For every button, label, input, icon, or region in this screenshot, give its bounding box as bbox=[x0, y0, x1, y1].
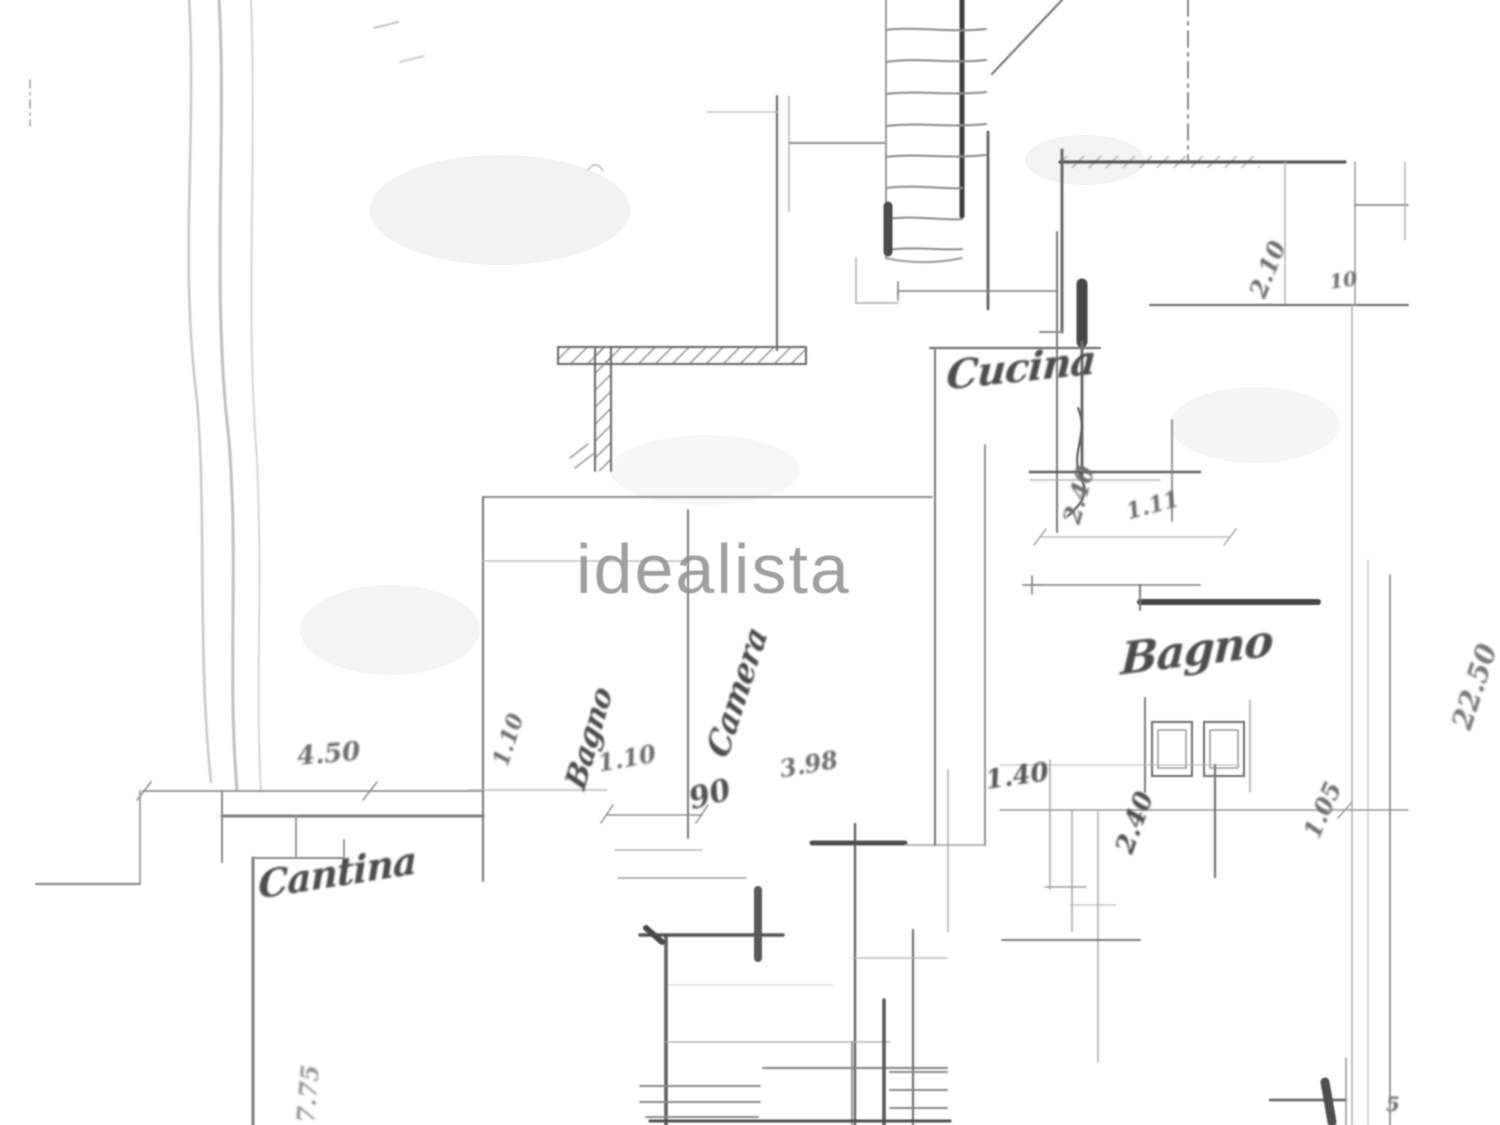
dim-cellar-depth: 7.75 bbox=[294, 1064, 323, 1124]
dim-site-width: 4.50 bbox=[296, 738, 361, 769]
top-staircase bbox=[707, 0, 1062, 350]
scanned-floorplan-page: Cucina Bagno Cantina Bagno Camera 4.50 1… bbox=[0, 0, 1500, 1125]
bottom-staircase bbox=[640, 928, 950, 1125]
dim-wall-thickness: 10 bbox=[1328, 268, 1358, 292]
site-boundary-lines bbox=[30, 0, 603, 792]
idealista-watermark: idealista bbox=[576, 534, 851, 604]
cellar-walls bbox=[36, 782, 483, 1125]
bathroom-fixtures bbox=[1145, 698, 1250, 792]
dim-corner-mark: 5 bbox=[1386, 1094, 1400, 1114]
right-lower-walls bbox=[1000, 760, 1408, 1125]
